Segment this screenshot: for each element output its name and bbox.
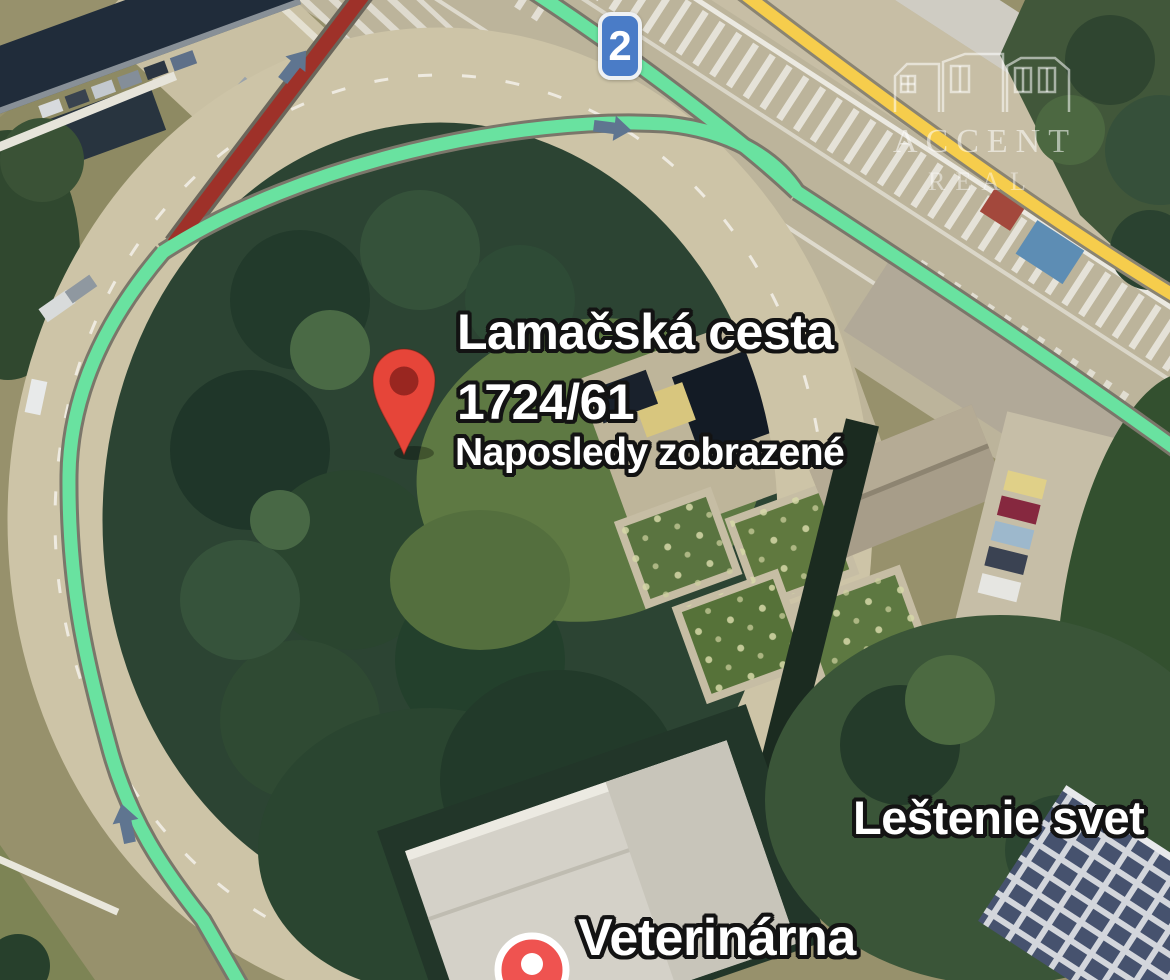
destination-label-subtitle[interactable]: Naposledy zobrazené (455, 431, 844, 475)
poi-marker-icon[interactable] (498, 936, 566, 980)
poi-label-lestenie[interactable]: Leštenie svet (853, 790, 1144, 845)
destination-label-line2[interactable]: 1724/61 (457, 373, 634, 431)
satellite-map-canvas[interactable]: 2 ACCENT REAL Lamačská cesta 1724/61 (0, 0, 1170, 980)
lawn-2 (390, 510, 570, 650)
route-shield-number: 2 (608, 22, 631, 70)
poi-label-veterinarna[interactable]: Veterinárna (578, 908, 856, 968)
route-shield: 2 (598, 12, 642, 80)
destination-label-line1[interactable]: Lamačská cesta (457, 303, 834, 361)
